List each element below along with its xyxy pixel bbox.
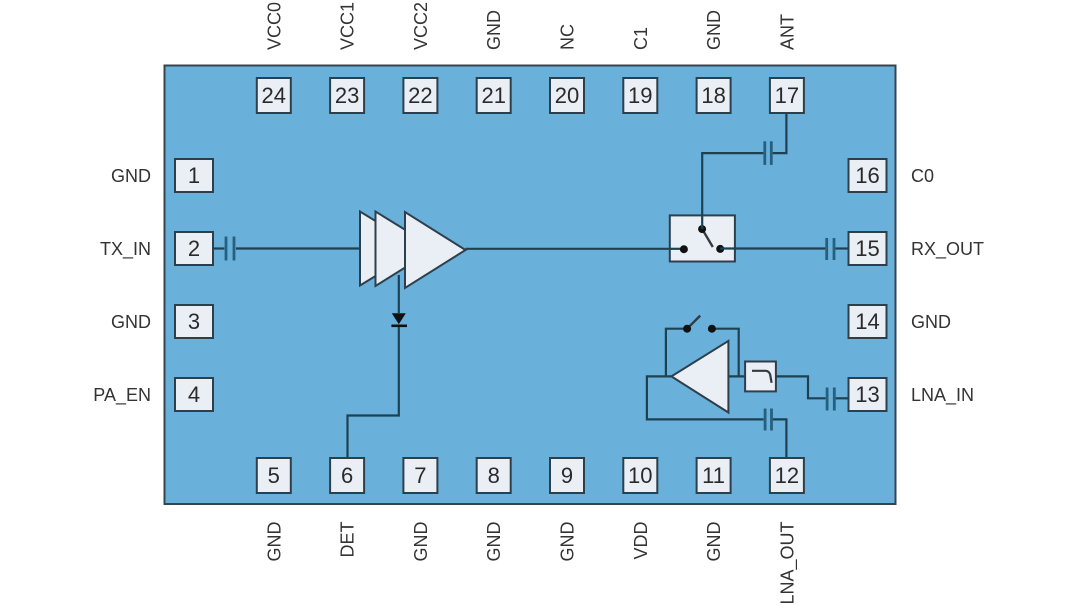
- svg-text:2: 2: [188, 236, 200, 261]
- svg-text:PA_EN: PA_EN: [93, 385, 151, 406]
- svg-text:C1: C1: [631, 27, 651, 50]
- svg-text:7: 7: [414, 463, 426, 488]
- svg-text:LNA_IN: LNA_IN: [911, 385, 974, 406]
- svg-text:GND: GND: [484, 10, 504, 50]
- svg-text:GND: GND: [411, 522, 431, 562]
- svg-text:TX_IN: TX_IN: [100, 239, 151, 260]
- svg-text:GND: GND: [558, 522, 578, 562]
- svg-text:RX_OUT: RX_OUT: [911, 239, 984, 260]
- svg-text:1: 1: [188, 163, 200, 188]
- svg-text:6: 6: [341, 463, 353, 488]
- svg-text:21: 21: [481, 83, 505, 108]
- svg-text:15: 15: [855, 236, 879, 261]
- svg-text:17: 17: [775, 83, 799, 108]
- svg-text:VCC0: VCC0: [264, 2, 284, 50]
- svg-text:18: 18: [701, 83, 725, 108]
- svg-text:14: 14: [855, 309, 879, 334]
- svg-text:GND: GND: [484, 522, 504, 562]
- svg-text:10: 10: [628, 463, 652, 488]
- svg-text:24: 24: [262, 83, 286, 108]
- svg-text:VCC2: VCC2: [411, 2, 431, 50]
- svg-text:GND: GND: [704, 522, 724, 562]
- svg-text:23: 23: [335, 83, 359, 108]
- svg-text:20: 20: [555, 83, 579, 108]
- svg-text:GND: GND: [264, 522, 284, 562]
- svg-text:13: 13: [855, 382, 879, 407]
- svg-text:19: 19: [628, 83, 652, 108]
- svg-text:3: 3: [188, 309, 200, 334]
- svg-text:12: 12: [775, 463, 799, 488]
- svg-text:16: 16: [855, 163, 879, 188]
- svg-text:VCC1: VCC1: [338, 2, 358, 50]
- svg-text:4: 4: [188, 382, 200, 407]
- svg-text:LNA_OUT: LNA_OUT: [777, 522, 798, 605]
- svg-text:22: 22: [408, 83, 432, 108]
- svg-text:8: 8: [488, 463, 500, 488]
- svg-text:5: 5: [268, 463, 280, 488]
- svg-text:GND: GND: [111, 166, 151, 186]
- svg-text:GND: GND: [704, 10, 724, 50]
- svg-text:C0: C0: [911, 166, 934, 186]
- svg-text:DET: DET: [338, 521, 358, 557]
- svg-text:11: 11: [702, 463, 725, 488]
- svg-text:GND: GND: [911, 312, 951, 332]
- svg-text:ANT: ANT: [777, 14, 797, 50]
- svg-text:NC: NC: [558, 24, 578, 50]
- svg-text:9: 9: [561, 463, 573, 488]
- svg-text:GND: GND: [111, 312, 151, 332]
- svg-text:VDD: VDD: [631, 522, 651, 560]
